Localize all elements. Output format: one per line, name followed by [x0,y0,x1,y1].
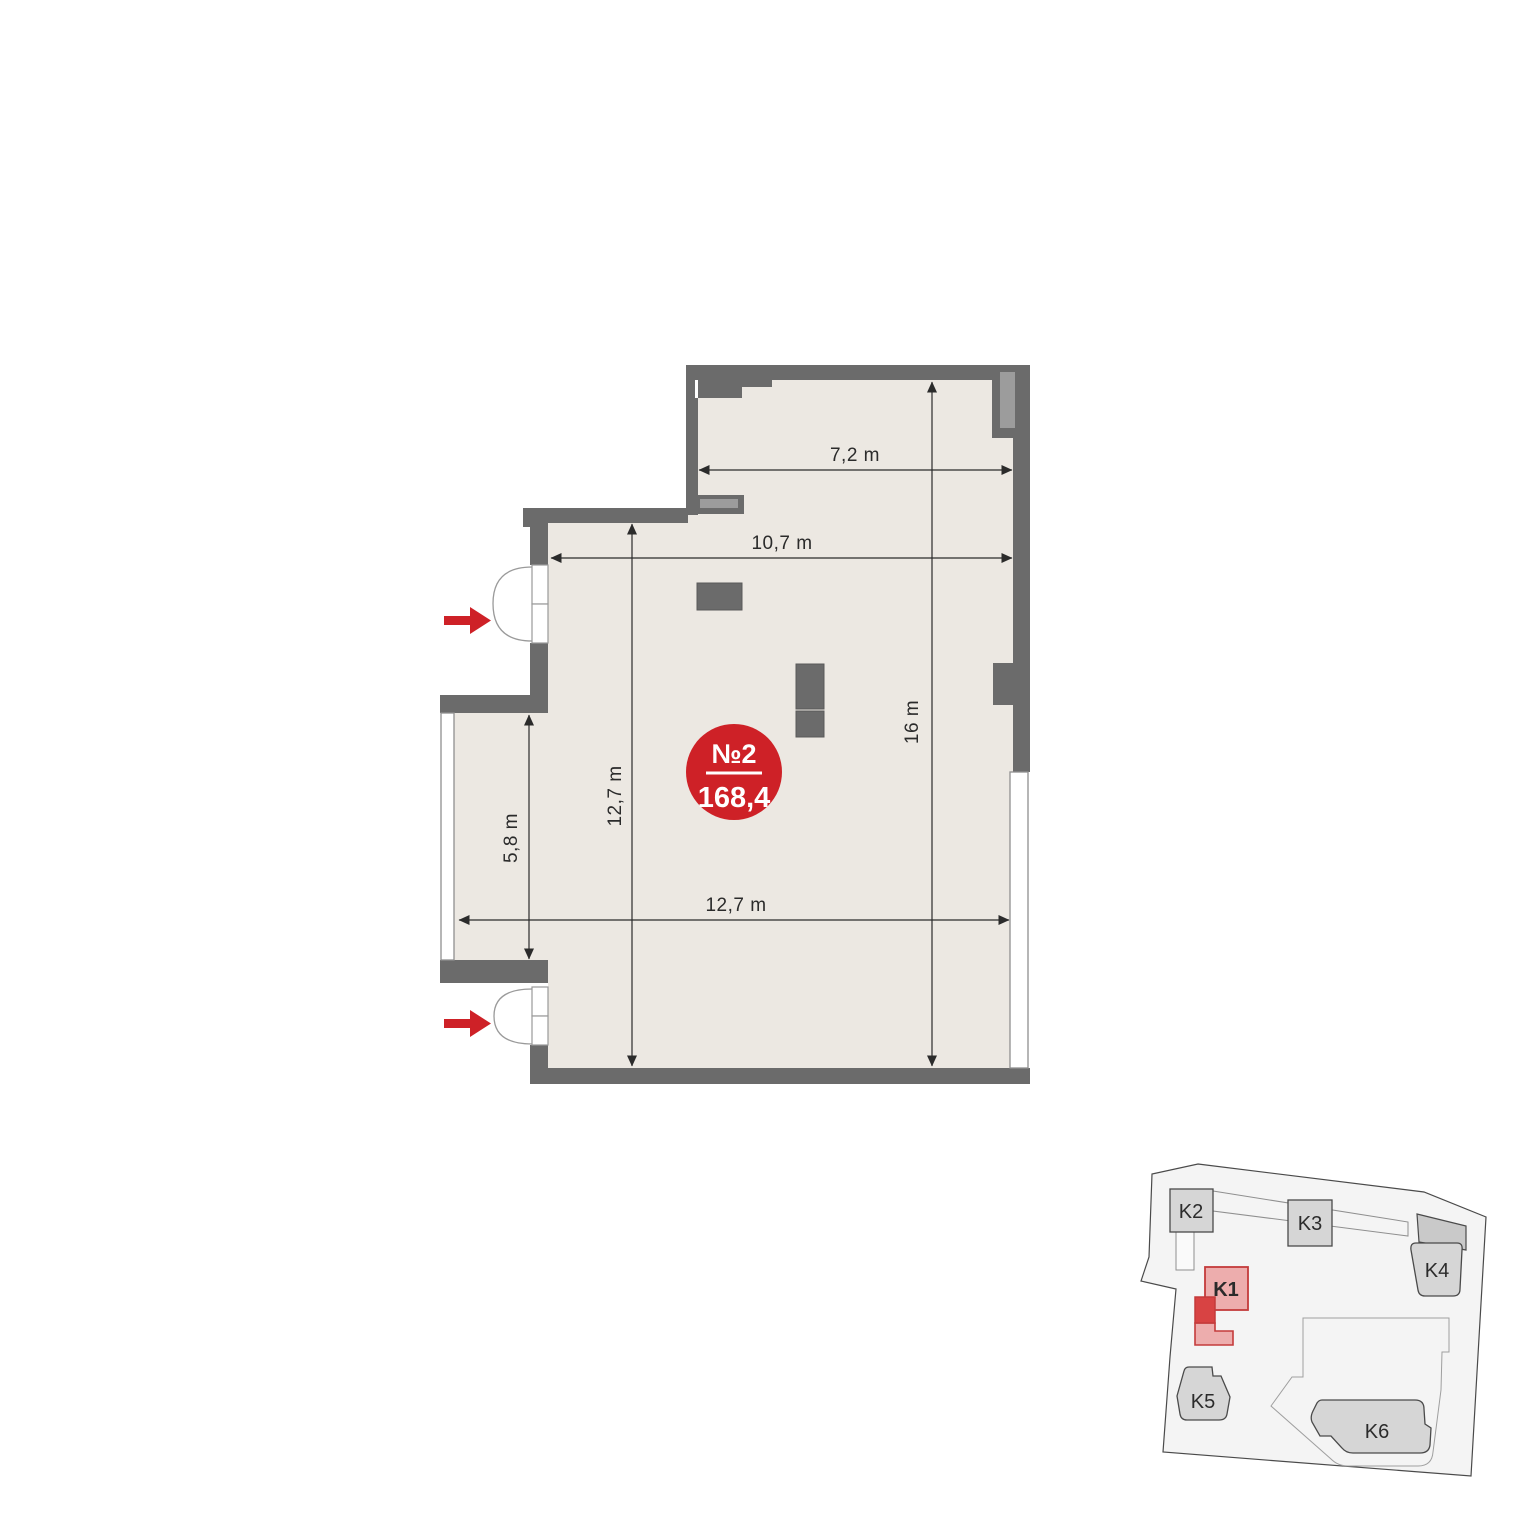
wall-step-1 [698,380,742,398]
dim-label-room-height: 12,7 m [605,765,626,826]
wall-jog [530,508,548,565]
site-building-label-k4: K4 [1425,1260,1449,1282]
dim-label-bottom-width: 12,7 m [705,895,766,916]
dim-label-mid-width: 10,7 m [751,533,812,554]
door-leaf [532,1016,548,1045]
site-building-label-k2: K2 [1179,1201,1203,1223]
door-upper [493,565,548,643]
window-left [441,713,454,960]
entrance-arrow-icon [444,607,491,634]
wall-right [1013,365,1030,772]
unit-area: 168,4 [698,782,771,814]
site-building-label-k3: K3 [1298,1213,1322,1235]
floor-plan-page: 7,2 m 10,7 m 12,7 m 12,7 m 16 m 5,8 m №2… [0,0,1536,1536]
floor-plan: 7,2 m 10,7 m 12,7 m 12,7 m 16 m 5,8 m №2… [440,365,1030,1084]
furniture-block [697,583,742,610]
door-leaf [532,565,548,604]
door-leaf [532,604,548,643]
site-building-label-k1: K1 [1213,1279,1239,1301]
door-lower [494,987,548,1045]
site-building-label-k5: K5 [1191,1391,1215,1413]
shaft-top-right [1000,372,1015,428]
dim-label-top-width: 7,2 m [830,445,880,466]
plan-canvas: 7,2 m 10,7 m 12,7 m 12,7 m 16 m 5,8 m №2… [0,0,1536,1536]
wall-step-2 [742,380,772,387]
wall-bay-bottom [440,960,548,983]
wall-bay-top [440,695,548,713]
wall-jog-notch [523,508,530,527]
unit-number: №2 [711,739,756,769]
k1-current-unit-block [1195,1297,1215,1323]
wall-top [686,365,1030,380]
entrance-arrow-icon [444,1010,491,1037]
dim-label-bay-height: 5,8 m [501,813,522,863]
door-leaf [532,987,548,1016]
dim-label-right-height: 16 m [902,700,923,744]
window-right [1010,772,1028,1068]
wall-mid-top [548,508,688,523]
door-swing-arc [494,989,532,1044]
site-corridor [1176,1232,1194,1270]
furniture-block [796,664,824,709]
furniture-block [796,711,824,737]
wall-bottom [530,1068,1030,1084]
unit-badge: №2 168,4 [686,724,782,820]
wall-right-bump [993,663,1013,705]
site-building-label-k6: K6 [1365,1421,1389,1443]
stub-shelf [700,499,738,508]
site-plan: K1 K2 K3 K4 K5 K6 [1141,1164,1486,1476]
door-swing-arc [493,567,532,641]
wall-gap-line [695,380,698,398]
